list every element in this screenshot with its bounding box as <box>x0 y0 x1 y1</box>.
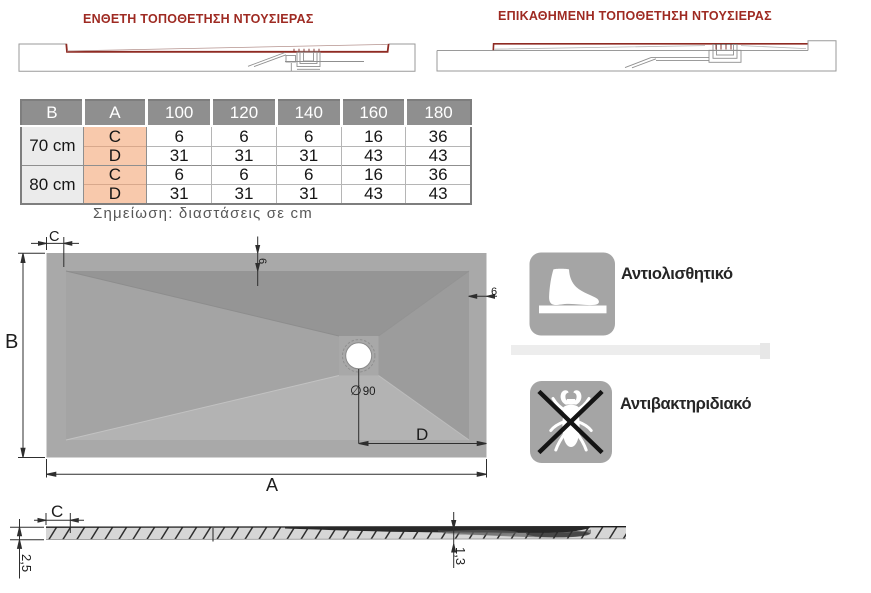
svg-text:6: 6 <box>256 258 268 264</box>
svg-text:B: B <box>5 331 18 353</box>
svg-text:6: 6 <box>491 286 497 298</box>
svg-text:∅90: ∅90 <box>350 383 376 398</box>
svg-text:D: D <box>416 425 428 444</box>
svg-text:1,3: 1,3 <box>453 547 468 565</box>
svg-text:A: A <box>266 475 278 495</box>
svg-text:2,5: 2,5 <box>19 554 34 572</box>
svg-text:C: C <box>51 502 63 521</box>
svg-text:C: C <box>49 229 59 245</box>
